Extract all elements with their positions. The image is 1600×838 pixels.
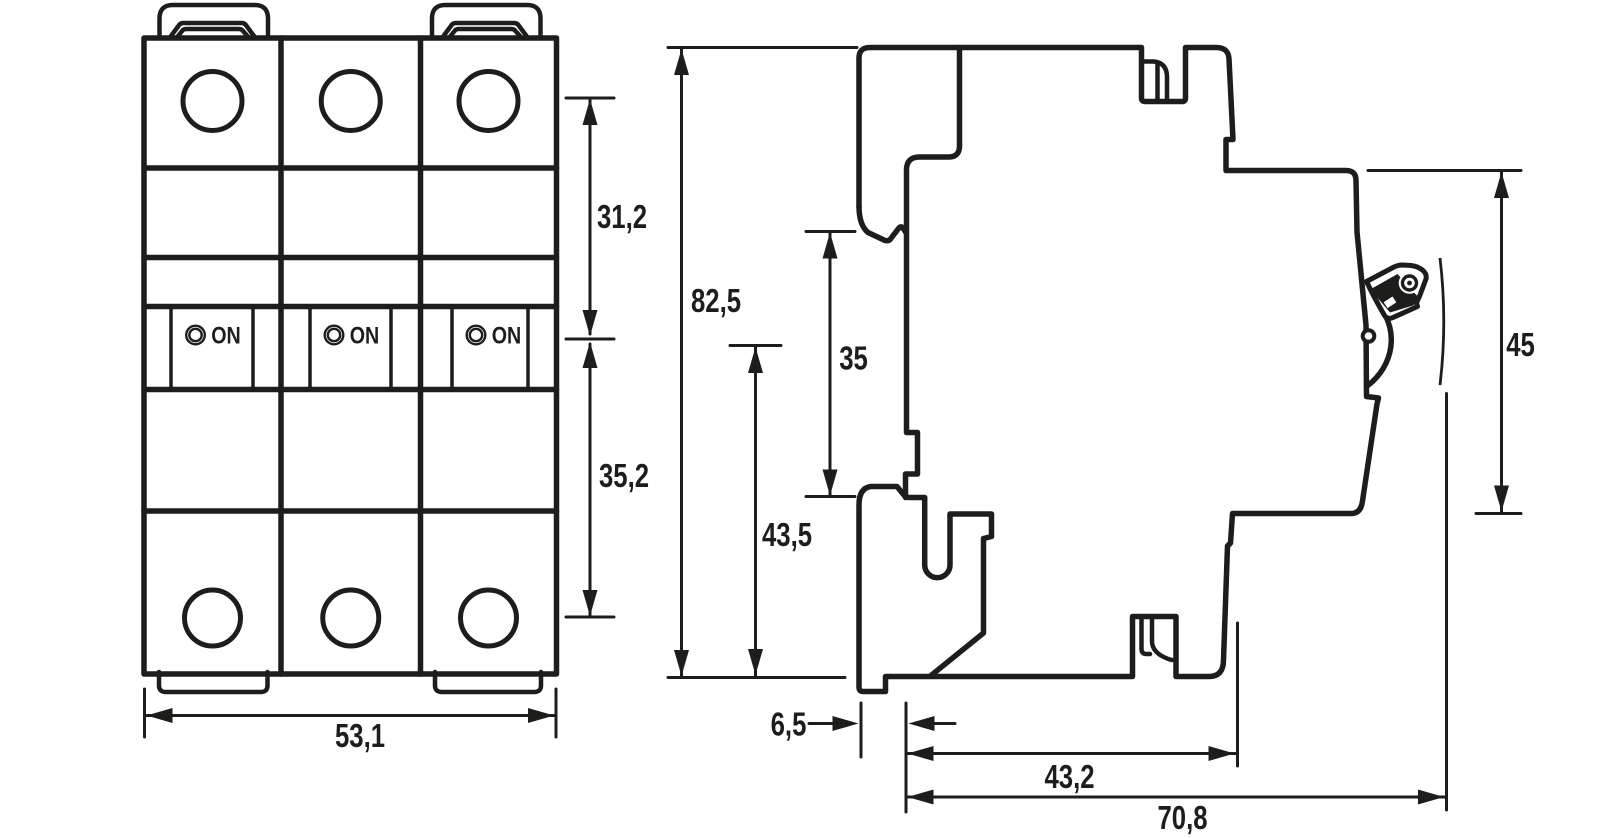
svg-text:35: 35 [839,341,868,378]
svg-text:70,8: 70,8 [1157,800,1207,837]
svg-text:43,5: 43,5 [762,517,812,554]
svg-text:31,2: 31,2 [597,199,647,236]
svg-text:ON: ON [350,322,380,349]
svg-text:6,5: 6,5 [771,707,807,744]
svg-text:43,2: 43,2 [1044,759,1094,796]
svg-text:35,2: 35,2 [599,458,649,495]
svg-text:ON: ON [492,322,522,349]
svg-text:53,1: 53,1 [335,718,385,755]
svg-text:82,5: 82,5 [691,283,741,320]
svg-text:ON: ON [211,322,241,349]
svg-text:45: 45 [1506,327,1535,364]
